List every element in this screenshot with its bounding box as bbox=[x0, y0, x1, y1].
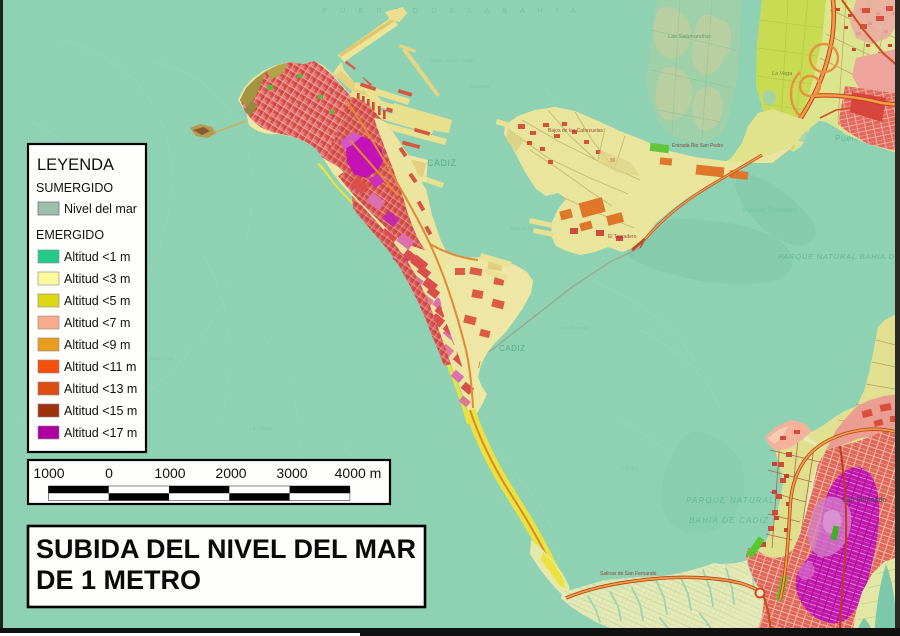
svg-text:Darsena: Darsena bbox=[470, 84, 489, 90]
svg-text:1000: 1000 bbox=[33, 465, 64, 481]
svg-text:Dique de San Felipe: Dique de San Felipe bbox=[430, 58, 476, 64]
svg-text:LEYENDA: LEYENDA bbox=[37, 156, 114, 174]
svg-text:Las Salamandras: Las Salamandras bbox=[668, 34, 711, 40]
svg-text:DE 1 METRO: DE 1 METRO bbox=[36, 565, 201, 595]
svg-text:El Trocadero: El Trocadero bbox=[608, 234, 637, 240]
svg-text:San Fernando: San Fernando bbox=[842, 497, 886, 504]
svg-text:Entrada Rio San Pedro: Entrada Rio San Pedro bbox=[672, 143, 724, 149]
svg-text:Altitud <5 m: Altitud <5 m bbox=[64, 294, 130, 308]
svg-text:El Bajon: El Bajon bbox=[620, 466, 639, 472]
svg-text:PARQUE NATURAL BAHIA DE CADIZ: PARQUE NATURAL BAHIA DE CADIZ bbox=[778, 252, 900, 261]
svg-text:3000: 3000 bbox=[276, 465, 307, 481]
svg-text:La Vega: La Vega bbox=[772, 71, 792, 77]
svg-text:Altitud <13 m: Altitud <13 m bbox=[64, 382, 137, 396]
svg-text:Bajo del Trocadero: Bajo del Trocadero bbox=[742, 207, 797, 214]
svg-text:2000: 2000 bbox=[215, 465, 246, 481]
svg-text:La Galera: La Galera bbox=[250, 426, 272, 432]
svg-text:Altitud <3 m: Altitud <3 m bbox=[64, 272, 130, 286]
svg-text:CADIZ: CADIZ bbox=[427, 158, 457, 168]
svg-text:SUBIDA DEL NIVEL DEL MAR: SUBIDA DEL NIVEL DEL MAR bbox=[36, 534, 416, 564]
svg-text:Salinas de San Fernando: Salinas de San Fernando bbox=[600, 571, 657, 577]
svg-text:Bajos de las Cabezuelas: Bajos de las Cabezuelas bbox=[548, 128, 604, 134]
svg-text:4000 m: 4000 m bbox=[335, 465, 382, 481]
svg-text:EMERGIDO: EMERGIDO bbox=[36, 228, 104, 242]
svg-text:PARQUE NATURAL: PARQUE NATURAL bbox=[686, 496, 775, 505]
svg-text:Altitud <15 m: Altitud <15 m bbox=[64, 404, 137, 418]
svg-text:0: 0 bbox=[105, 465, 113, 481]
svg-text:Las Puercas: Las Puercas bbox=[560, 326, 588, 332]
svg-text:Bajo Fraile: Bajo Fraile bbox=[150, 356, 174, 362]
svg-text:Altitud <11 m: Altitud <11 m bbox=[64, 360, 136, 374]
svg-text:Altitud <1 m: Altitud <1 m bbox=[64, 250, 130, 264]
svg-text:1000: 1000 bbox=[154, 465, 185, 481]
svg-text:Altitud <9 m: Altitud <9 m bbox=[64, 338, 130, 352]
svg-text:Altitud <7 m: Altitud <7 m bbox=[64, 316, 130, 330]
svg-text:Altitud <17 m: Altitud <17 m bbox=[64, 426, 137, 440]
svg-text:P U E R T O D E L A B A H I: P U E R T O D E L A B A H I A bbox=[322, 6, 581, 15]
svg-text:BAHIA DE CADIZ: BAHIA DE CADIZ bbox=[689, 516, 769, 525]
svg-text:Nivel del mar: Nivel del mar bbox=[64, 202, 137, 216]
svg-text:CADIZ: CADIZ bbox=[499, 344, 526, 353]
svg-text:SUMERGIDO: SUMERGIDO bbox=[36, 181, 113, 195]
